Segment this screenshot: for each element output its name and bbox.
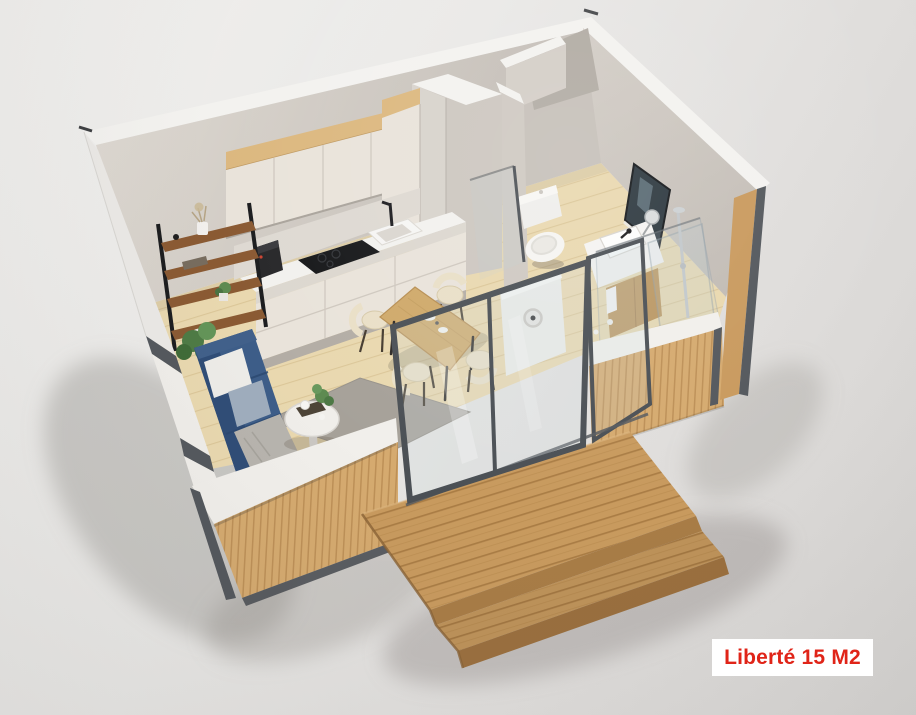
chair-leg [382,329,383,352]
cup [319,414,325,420]
plant-leaves [324,396,334,406]
coffee-machine-light [259,255,262,258]
vase [197,222,208,235]
model-name-text: Liberté 15 M2 [724,646,861,670]
sink-faucet [390,203,392,226]
teapot [301,401,310,410]
corner-tick [79,127,92,131]
wall-lamp [645,210,659,224]
figurine [173,234,179,240]
tiny-house-floorplan-render: Liberté 15 M2 [0,0,916,715]
chair-seat [437,286,463,304]
floorplan-3d-scene [0,0,916,715]
plant-pot [219,293,228,301]
dried-flowers [195,203,204,212]
corner-tick [584,10,598,14]
plant-leaves [312,384,322,394]
model-name-label: Liberté 15 M2 [712,639,873,676]
shower-head [673,207,685,213]
flush-button [539,190,543,194]
leaves [198,322,216,340]
leaves [176,344,192,360]
